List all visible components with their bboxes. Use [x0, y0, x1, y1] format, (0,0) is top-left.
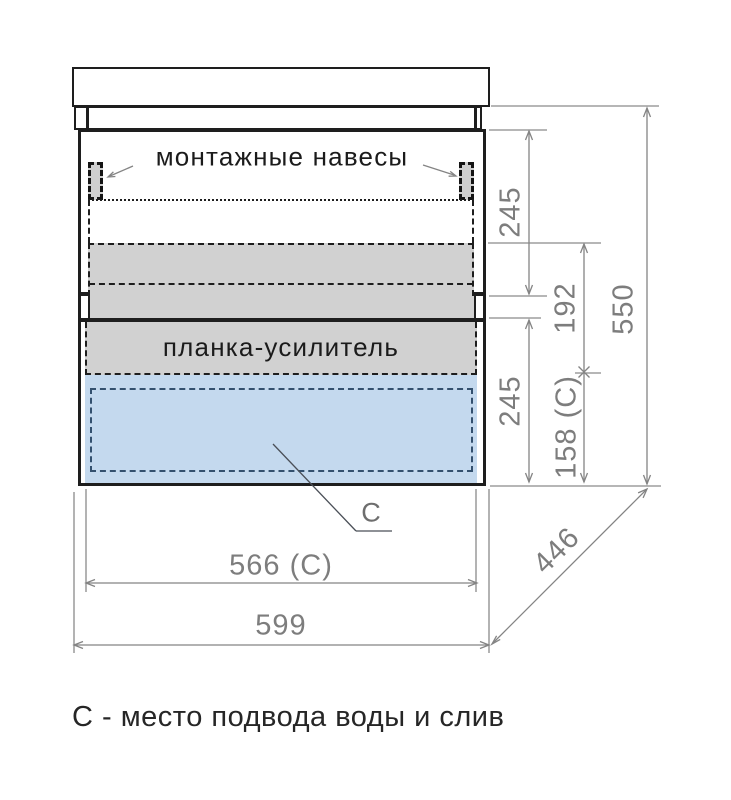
mounting-hanger-left — [88, 162, 103, 200]
divider-rail — [78, 296, 486, 318]
dim-lower-section-height: 245 — [495, 375, 528, 426]
diagram-caption: С - место подвода воды и слив — [72, 701, 504, 734]
dim-c-zone-width: 566 (C) — [229, 550, 333, 583]
hanger-zone-dash-right — [472, 200, 474, 243]
basin-edge-right — [474, 108, 477, 128]
basin-edge-left — [86, 108, 89, 128]
water-supply-zone-inner — [90, 388, 473, 472]
upper-mounting-rail — [88, 243, 474, 296]
dim-rail-gap: 192 — [550, 282, 583, 333]
hanger-zone-dash-left — [88, 200, 90, 243]
mounting-hanger-right — [459, 162, 474, 200]
dim-overall-height: 550 — [608, 283, 641, 334]
c-marker-label: C — [361, 498, 381, 529]
vanity-cabinet-diagram: планка-усилитель — [0, 0, 731, 800]
hanger-level-dotted-line — [88, 199, 474, 201]
dim-c-zone-height: 158 (C) — [551, 375, 584, 479]
reinforcement-plank-band: планка-усилитель — [85, 322, 477, 375]
mounting-hangers-label: монтажные навесы — [156, 142, 409, 173]
dim-depth: 446 — [527, 521, 587, 581]
side-wall-section-left — [81, 296, 90, 318]
basin-band — [74, 106, 482, 130]
dim-upper-section-height: 245 — [495, 186, 528, 237]
side-wall-section-right — [474, 296, 483, 318]
reinforcement-plank-label: планка-усилитель — [163, 332, 399, 363]
upper-rail-dash-line — [89, 283, 473, 285]
dim-overall-width: 599 — [255, 610, 306, 643]
countertop-slab — [72, 67, 490, 107]
